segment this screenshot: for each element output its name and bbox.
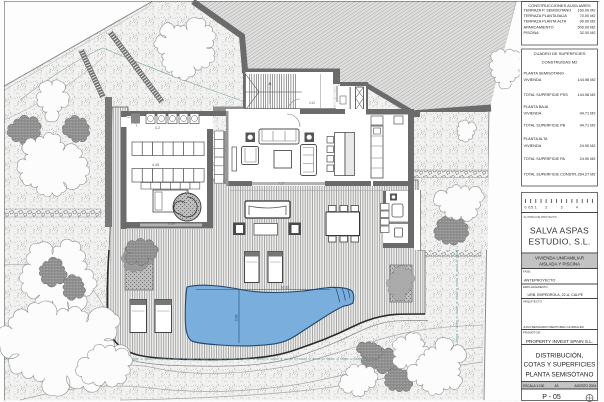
svg-text:P - 05: P - 05: [542, 394, 561, 401]
svg-text:0: 0: [525, 206, 527, 210]
svg-text:160.00 M2: 160.00 M2: [578, 9, 596, 13]
svg-text:DISTRIBUCIÓN,: DISTRIBUCIÓN,: [536, 351, 584, 360]
svg-text:0.5: 0.5: [528, 206, 533, 210]
svg-text:FASE: FASE: [523, 270, 530, 274]
svg-text:3.88: 3.88: [235, 315, 239, 322]
svg-text:PLANTA SEMISÓTANO: PLANTA SEMISÓTANO: [526, 370, 594, 379]
svg-text:EMPLAZAMIENTO: EMPLAZAMIENTO: [523, 285, 548, 289]
svg-text:10.32: 10.32: [281, 286, 290, 290]
svg-text:CONSTRUIDAS M2: CONSTRUIDAS M2: [542, 60, 579, 65]
svg-text:7.27: 7.27: [278, 182, 285, 186]
svg-text:1.84: 1.84: [388, 182, 395, 186]
svg-text:A3: A3: [555, 384, 559, 388]
svg-text:AISLADA Y PISCINA: AISLADA Y PISCINA: [539, 262, 580, 267]
svg-text:2.61: 2.61: [309, 101, 315, 105]
svg-text:1.2: 1.2: [358, 182, 363, 186]
svg-text:TERRAZA PLANTA BAJA: TERRAZA PLANTA BAJA: [524, 14, 568, 18]
svg-text:VIVIENDA: VIVIENDA: [524, 144, 542, 148]
svg-text:4.45: 4.45: [152, 163, 159, 167]
svg-text:CONSTRUCCIONES AUXILIARES: CONSTRUCCIONES AUXILIARES: [528, 3, 591, 8]
svg-text:PLANTA BAJA: PLANTA BAJA: [524, 105, 549, 109]
svg-text:90.00 M2: 90.00 M2: [580, 20, 596, 24]
svg-text:SALVA ASPAS: SALVA ASPAS: [530, 226, 589, 236]
svg-text:ESCALA 1:100: ESCALA 1:100: [523, 384, 544, 388]
svg-text:144.98 M2: 144.98 M2: [578, 93, 596, 97]
svg-text:PLANTA SEMISOTANO: PLANTA SEMISOTANO: [524, 72, 564, 76]
svg-text:32.00 M2: 32.00 M2: [580, 31, 596, 35]
svg-text:2: 2: [545, 206, 547, 210]
svg-text:TOTAL SUPERFICIE PB: TOTAL SUPERFICIE PB: [524, 124, 566, 128]
svg-text:144.98 M2: 144.98 M2: [578, 78, 596, 82]
svg-text:70.00 M2: 70.00 M2: [580, 14, 596, 18]
svg-text:TERRAZA P. SEMISOTANO: TERRAZA P. SEMISOTANO: [524, 9, 572, 13]
svg-text:5.50: 5.50: [168, 222, 175, 226]
svg-text:24.90 M2: 24.90 M2: [580, 144, 596, 148]
svg-text:PLANTA ALTA: PLANTA ALTA: [524, 137, 549, 141]
svg-text:3: 3: [561, 206, 563, 210]
svg-text:TERRAZA PLANTA ALTA: TERRAZA PLANTA ALTA: [524, 20, 567, 24]
svg-text:500.00 M2: 500.00 M2: [578, 25, 596, 29]
svg-text:CUADRO DE SUPERFICIES: CUADRO DE SUPERFICIES: [534, 51, 586, 56]
svg-text:VIVIENDA: VIVIENDA: [524, 78, 542, 82]
svg-text:ANTEPROYECTO: ANTEPROYECTO: [524, 279, 555, 283]
svg-text:1: 1: [535, 206, 537, 210]
svg-text:ARQUITECTO: ARQUITECTO: [523, 300, 543, 304]
svg-text:TOTAL SUPERFICIE PA: TOTAL SUPERFICIE PA: [524, 157, 566, 161]
svg-text:VIVIENDA UNIFAMILIAR: VIVIENDA UNIFAMILIAR: [535, 256, 584, 261]
svg-text:VIVIENDA: VIVIENDA: [524, 112, 542, 116]
svg-text:4.2: 4.2: [155, 126, 160, 130]
svg-text:AUTORIA DE PROYECTO: AUTORIA DE PROYECTO: [524, 215, 558, 219]
svg-text:264.27 M2: 264.27 M2: [578, 173, 596, 177]
svg-text:JUAN BERNARDO BERTOMEU HORRALE: JUAN BERNARDO BERTOMEU HORRALES: [523, 325, 584, 329]
svg-text:PROPERTY INVEST SPAIN S.L.: PROPERTY INVEST SPAIN S.L.: [526, 339, 593, 344]
svg-text:24.90 M2: 24.90 M2: [580, 157, 596, 161]
svg-text:ESTUDIO, S.L.: ESTUDIO, S.L.: [528, 237, 590, 247]
svg-text:APARCAMIENTO: APARCAMIENTO: [524, 25, 554, 29]
svg-text:TOTAL SUPERFICIE PSS: TOTAL SUPERFICIE PSS: [524, 93, 569, 97]
svg-text:PISCINA: PISCINA: [524, 31, 540, 35]
svg-text:PROMOTOR: PROMOTOR: [523, 331, 540, 335]
svg-text:94.71 M2: 94.71 M2: [580, 124, 596, 128]
svg-text:AGOSTO 2004: AGOSTO 2004: [574, 384, 596, 388]
svg-text:TOTAL SUPERFICIE CONSTR.: TOTAL SUPERFICIE CONSTR.: [524, 173, 578, 177]
svg-text:URB. EMPEDROLA, 22-A, CALPE: URB. EMPEDROLA, 22-A, CALPE: [528, 293, 584, 297]
svg-text:COTAS Y SUPERFICIES: COTAS Y SUPERFICIES: [524, 362, 596, 369]
svg-text:94.71 M2: 94.71 M2: [580, 112, 596, 116]
svg-text:4: 4: [576, 206, 578, 210]
